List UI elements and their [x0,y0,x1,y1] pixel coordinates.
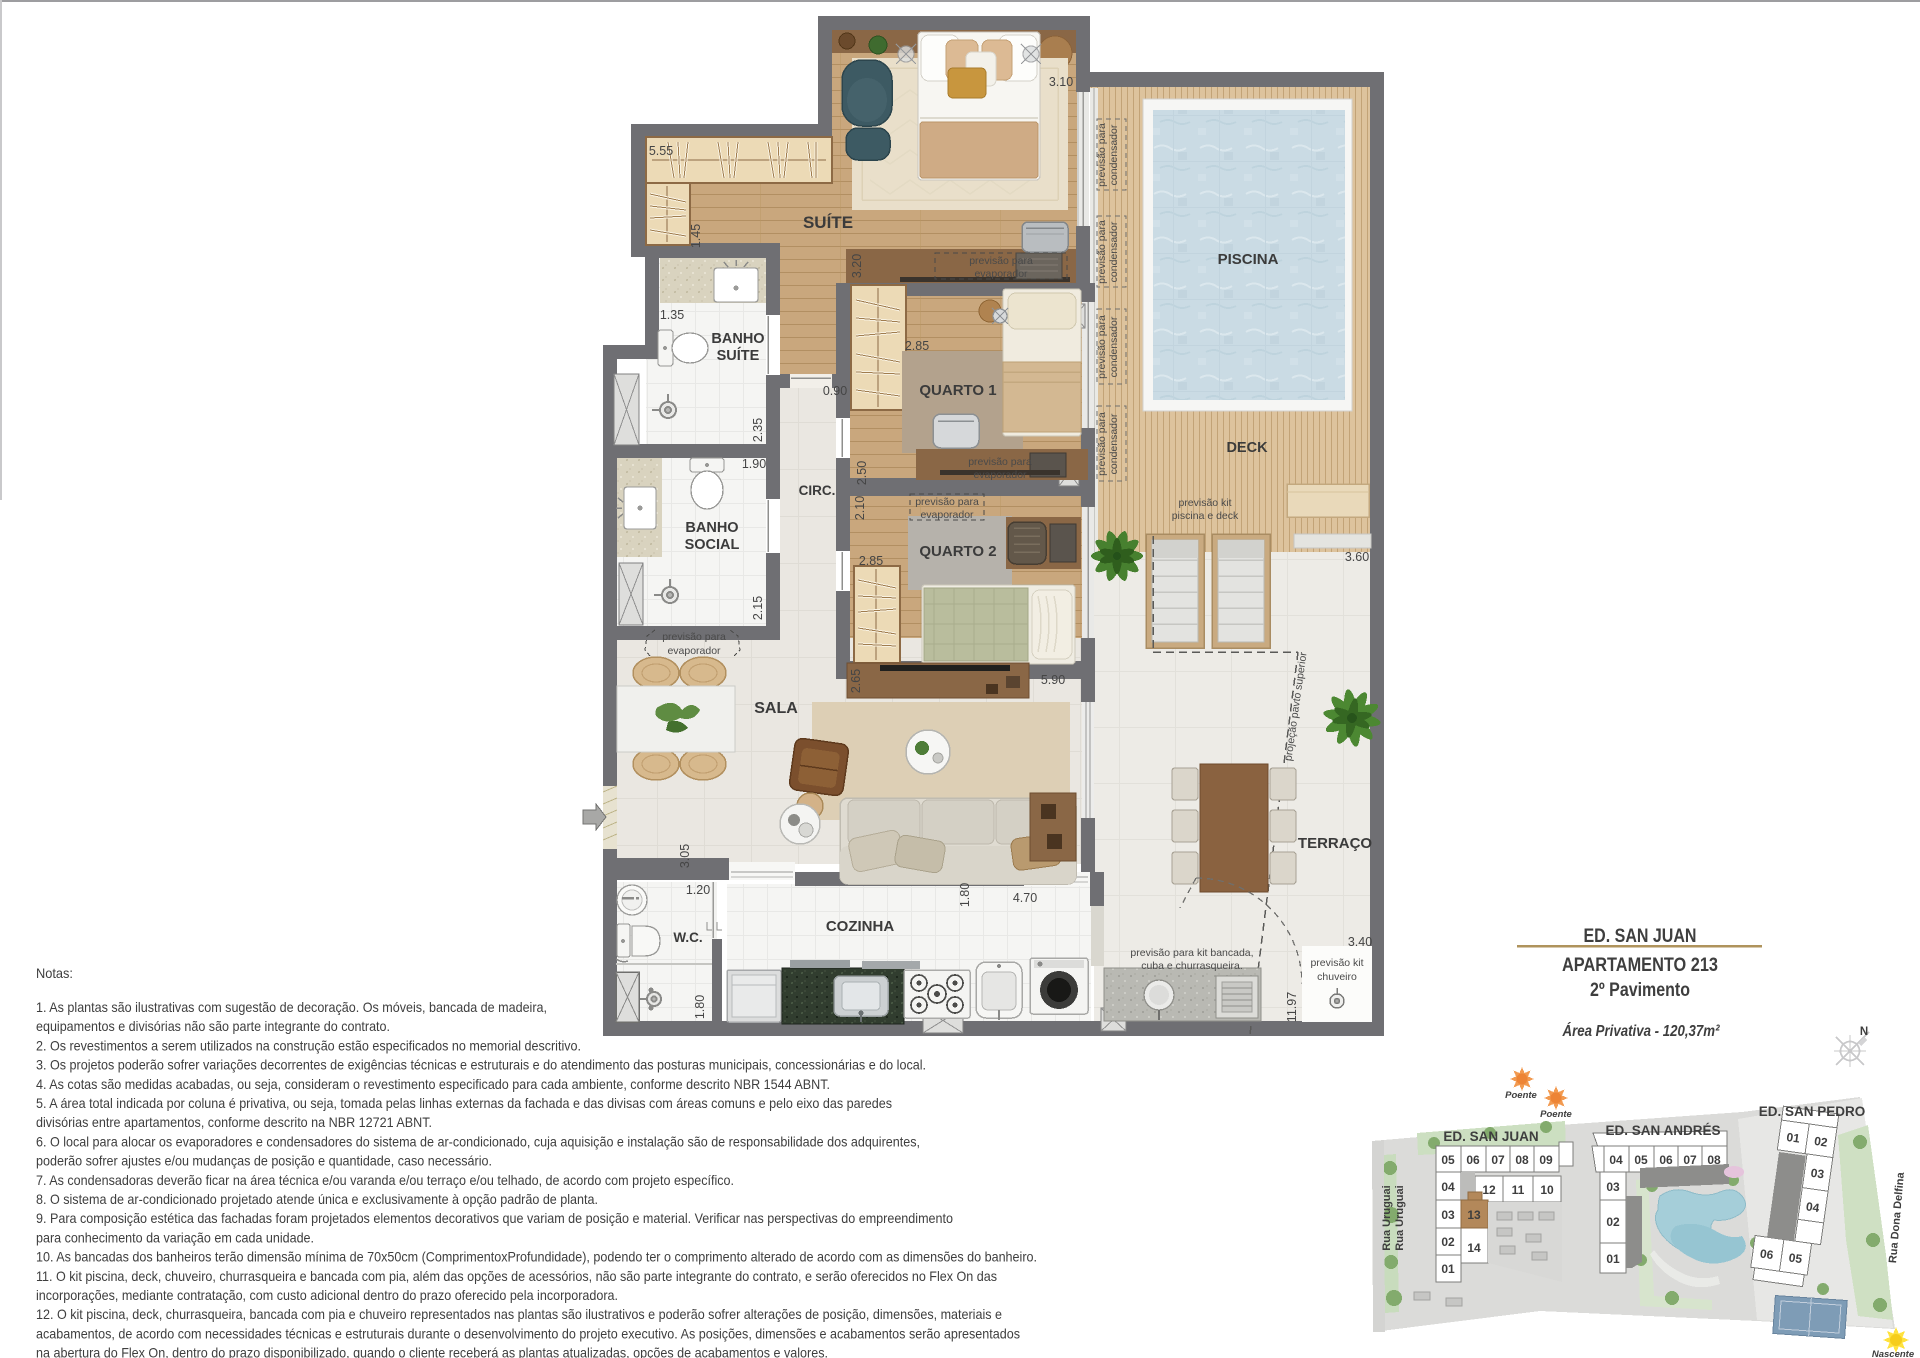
svg-text:03: 03 [1606,1180,1620,1194]
svg-text:7. As condensadoras deverão fi: 7. As condensadoras deverão ficar na áre… [36,1172,734,1188]
svg-text:1.80: 1.80 [958,883,972,907]
svg-text:2.15: 2.15 [751,596,765,620]
svg-text:08: 08 [1515,1153,1529,1167]
svg-text:ED. SAN ANDRÉS: ED. SAN ANDRÉS [1605,1123,1720,1138]
svg-text:evaporador: evaporador [973,469,1027,481]
svg-text:previsão para: previsão para [1096,315,1108,379]
svg-text:13: 13 [1467,1208,1481,1222]
svg-text:evaporador: evaporador [920,509,974,521]
svg-text:2. Os revestimentos a serem ut: 2. Os revestimentos a serem utilizados n… [36,1037,581,1053]
svg-text:previsão para: previsão para [1096,412,1108,476]
svg-text:9. Para composição estética da: 9. Para composição estética das fachadas… [36,1210,953,1226]
svg-text:piscina e deck: piscina e deck [1172,510,1239,522]
svg-text:12. O kit piscina, deck, churr: 12. O kit piscina, deck, churrasqueira, … [36,1306,1002,1322]
svg-text:Rua Uruguai: Rua Uruguai [1381,1185,1393,1250]
svg-text:01: 01 [1606,1252,1620,1266]
svg-text:09: 09 [1539,1153,1553,1167]
svg-text:3. Os projetos poderão sofrer: 3. Os projetos poderão sofrer variações … [36,1057,926,1073]
svg-text:11.97: 11.97 [1285,992,1299,1022]
svg-text:Nascente: Nascente [1872,1349,1915,1358]
svg-text:04: 04 [1441,1180,1455,1194]
svg-text:5. A área total indicada por c: 5. A área total indicada por coluna é pr… [36,1095,892,1111]
svg-text:SUÍTE: SUÍTE [717,347,760,364]
svg-text:equipamentos e divisórias não: equipamentos e divisórias não são parte … [36,1018,390,1034]
svg-text:QUARTO 2: QUARTO 2 [919,543,996,560]
svg-text:8. O sistema de ar-condicionad: 8. O sistema de ar-condicionado projetad… [36,1191,598,1207]
svg-text:14: 14 [1467,1241,1481,1255]
svg-text:ED. SAN PEDRO: ED. SAN PEDRO [1759,1104,1866,1119]
svg-text:QUARTO 1: QUARTO 1 [919,382,996,399]
svg-text:1.80: 1.80 [693,995,707,1019]
svg-text:01: 01 [1441,1262,1455,1276]
svg-text:10. As bancadas dos banheiros: 10. As bancadas dos banheiros terão dime… [36,1249,1037,1265]
svg-text:condensador: condensador [1108,413,1120,474]
svg-text:04: 04 [1609,1153,1623,1167]
svg-text:08: 08 [1707,1153,1721,1167]
svg-text:5.90: 5.90 [1041,673,1065,687]
svg-text:0.90: 0.90 [823,384,847,398]
svg-text:03: 03 [1810,1166,1825,1182]
svg-text:chuveiro: chuveiro [1317,971,1357,983]
svg-text:3.05: 3.05 [678,844,692,868]
svg-text:2.50: 2.50 [855,461,869,485]
svg-text:previsão kit: previsão kit [1178,497,1231,509]
svg-text:06: 06 [1466,1153,1480,1167]
svg-text:previsão para: previsão para [1096,220,1108,284]
svg-text:2.10: 2.10 [853,496,867,520]
svg-text:4. As cotas são medidas acabad: 4. As cotas são medidas acabadas, ou sej… [36,1076,830,1092]
svg-text:05: 05 [1441,1153,1455,1167]
svg-text:divisórias entre apartamentos,: divisórias entre apartamentos, conforme … [36,1114,432,1130]
svg-text:Poente: Poente [1540,1109,1572,1120]
svg-text:2.65: 2.65 [849,669,863,693]
svg-text:5.55: 5.55 [649,144,673,158]
svg-text:previsão para kit bancada,: previsão para kit bancada, [1130,947,1253,959]
svg-text:1.90: 1.90 [742,457,766,471]
svg-text:1.35: 1.35 [660,308,684,322]
svg-text:DECK: DECK [1226,440,1268,456]
svg-text:incorporações, mediante contra: incorporações, mediante contratação, com… [36,1287,618,1303]
svg-text:APARTAMENTO 213: APARTAMENTO 213 [1562,955,1718,976]
svg-text:BANHO: BANHO [711,331,764,347]
svg-text:SUÍTE: SUÍTE [803,213,853,232]
svg-text:evaporador: evaporador [974,268,1028,280]
svg-text:condensador: condensador [1108,316,1120,377]
svg-text:previsão para: previsão para [662,631,726,643]
svg-text:3.20: 3.20 [850,254,864,278]
svg-text:N: N [1860,1026,1868,1038]
svg-text:W.C.: W.C. [673,930,702,945]
svg-text:SOCIAL: SOCIAL [685,537,740,553]
svg-text:03: 03 [1441,1208,1455,1222]
svg-text:3.40: 3.40 [1348,935,1372,949]
svg-text:previsão para: previsão para [915,496,979,508]
svg-text:para conhecimento da variação: para conhecimento da variação em cada un… [36,1229,314,1245]
svg-text:10: 10 [1540,1183,1554,1197]
svg-text:04: 04 [1805,1199,1820,1215]
svg-text:ED. SAN JUAN: ED. SAN JUAN [1584,925,1697,947]
svg-text:Notas:: Notas: [36,965,73,981]
svg-text:06: 06 [1659,1153,1673,1167]
svg-text:ED. SAN JUAN: ED. SAN JUAN [1443,1129,1538,1144]
svg-text:11: 11 [1512,1183,1525,1197]
svg-text:TERRAÇO: TERRAÇO [1298,835,1372,852]
svg-text:2.85: 2.85 [905,339,929,353]
svg-text:condensador: condensador [1108,124,1120,185]
svg-text:2.35: 2.35 [751,418,765,442]
svg-text:PISCINA: PISCINA [1218,251,1279,268]
svg-text:4.70: 4.70 [1013,891,1037,905]
svg-text:05: 05 [1634,1153,1648,1167]
svg-text:previsão para: previsão para [969,255,1033,267]
svg-text:Área Privativa - 120,37m²: Área Privativa - 120,37m² [1562,1021,1720,1040]
svg-text:3.60: 3.60 [1345,550,1369,564]
svg-text:07: 07 [1491,1153,1505,1167]
svg-text:12: 12 [1482,1183,1496,1197]
svg-text:na abertura do Flex On, dentro: na abertura do Flex On, dentro do prazo … [36,1345,828,1358]
svg-text:previsão para: previsão para [1096,123,1108,187]
svg-text:6. O local para alocar os evap: 6. O local para alocar os evaporadores e… [36,1133,920,1149]
svg-text:previsão para: previsão para [968,456,1032,468]
svg-text:1. As plantas são ilustrativas: 1. As plantas são ilustrativas com suges… [36,999,547,1015]
svg-text:acabamentos, de acordo com nec: acabamentos, de acordo com necessidades … [36,1325,1020,1341]
svg-text:02: 02 [1606,1215,1620,1229]
svg-text:02: 02 [1441,1235,1455,1249]
svg-text:Rua Uruguai: Rua Uruguai [1394,1185,1406,1250]
svg-text:02: 02 [1813,1134,1828,1150]
svg-text:COZINHA: COZINHA [826,918,894,935]
svg-text:Poente: Poente [1505,1090,1537,1101]
svg-text:11. O kit piscina, deck, chuve: 11. O kit piscina, deck, chuveiro, churr… [36,1268,997,1284]
svg-text:evaporador: evaporador [667,645,721,657]
svg-text:07: 07 [1683,1153,1697,1167]
svg-text:05: 05 [1788,1250,1803,1266]
svg-text:3.10: 3.10 [1049,75,1073,89]
svg-text:BANHO: BANHO [685,520,738,536]
svg-text:cuba e churrasqueira.: cuba e churrasqueira. [1141,960,1243,972]
svg-text:poderão sofrer ajustes e/ou mu: poderão sofrer ajustes e/ou mudanças de … [36,1153,492,1169]
svg-text:1.45: 1.45 [689,224,703,248]
svg-text:2.85: 2.85 [859,554,883,568]
svg-text:SALA: SALA [754,700,798,717]
svg-text:01: 01 [1786,1130,1801,1146]
svg-text:2º Pavimento: 2º Pavimento [1590,980,1690,1001]
svg-text:previsão kit: previsão kit [1310,957,1363,969]
svg-text:CIRC.: CIRC. [799,483,836,498]
svg-text:06: 06 [1759,1246,1774,1262]
svg-text:condensador: condensador [1108,221,1120,282]
svg-text:1.20: 1.20 [686,883,710,897]
